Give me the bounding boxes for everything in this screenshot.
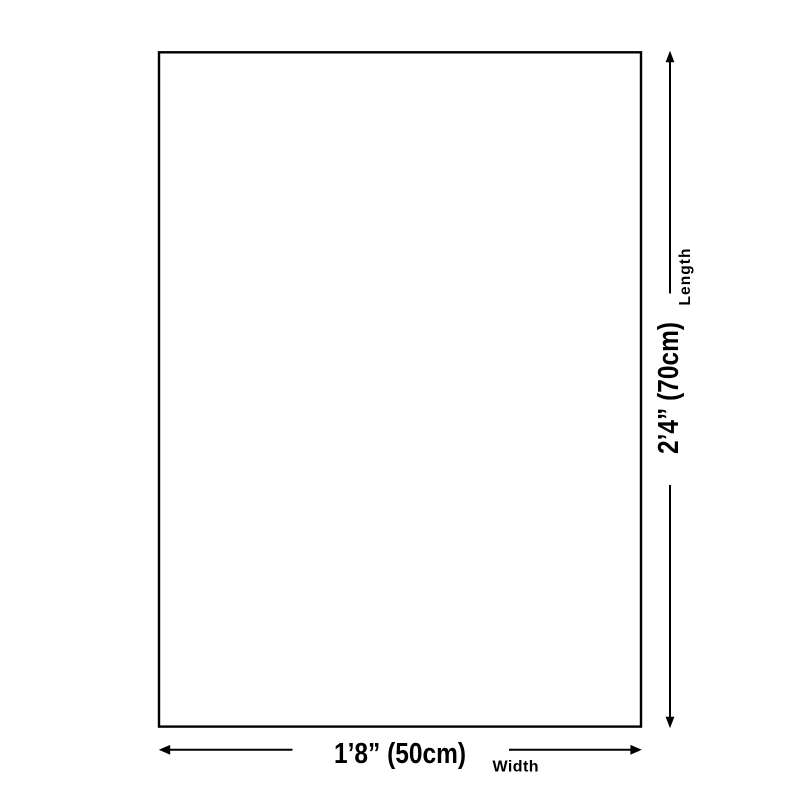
svg-text:Width: Width bbox=[493, 759, 539, 776]
svg-text:2’4” (70cm): 2’4” (70cm) bbox=[653, 322, 685, 454]
svg-text:Length: Length bbox=[677, 249, 694, 306]
svg-text:1’8” (50cm): 1’8” (50cm) bbox=[334, 738, 466, 770]
